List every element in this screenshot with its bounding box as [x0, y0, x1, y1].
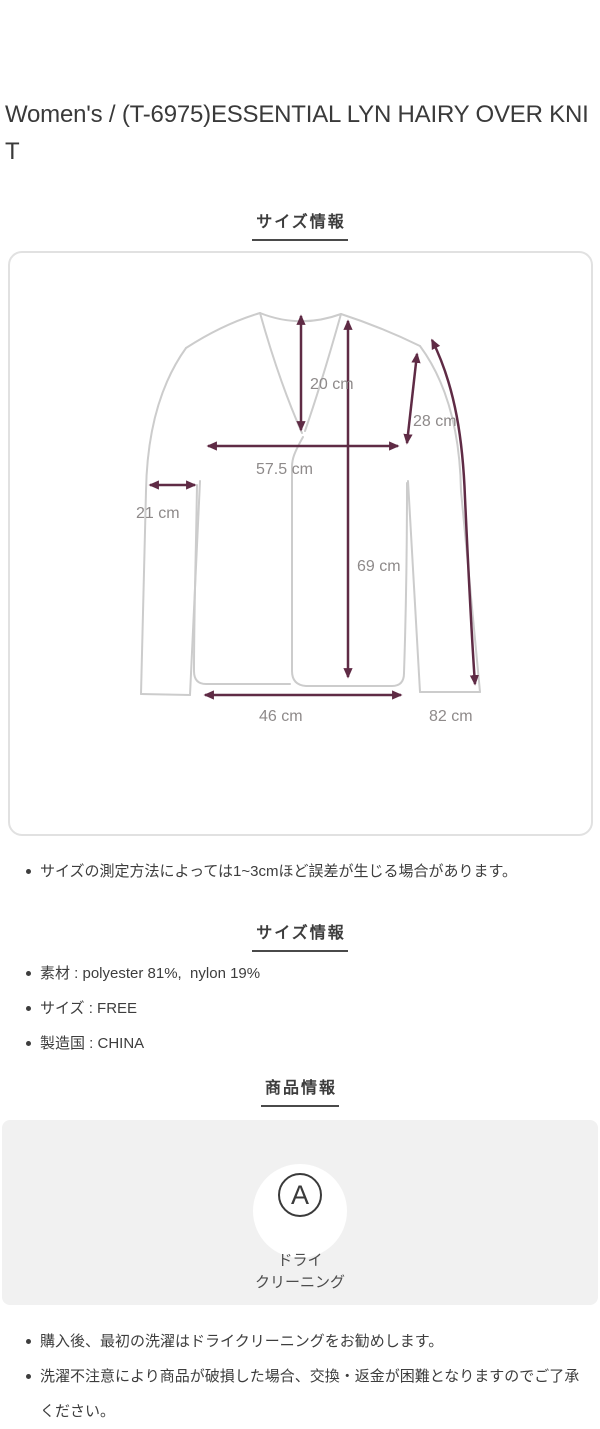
bullet-icon: [26, 1006, 31, 1011]
bullet-icon: [26, 971, 31, 976]
list-item: 購入後、最初の洗濯はドライクリーニングをお勧めします。: [0, 1324, 600, 1359]
list-item: 素材 : polyester 81%, nylon 19%: [0, 956, 600, 991]
measure-label-neck-drop: 20 cm: [310, 376, 354, 393]
bullet-icon: [26, 1041, 31, 1046]
measurement-labels: 20 cm 28 cm 57.5 cm 21 cm 69 cm 46 cm 82…: [136, 376, 473, 725]
bullet-icon: [26, 1374, 31, 1379]
size-diagram-box: 20 cm 28 cm 57.5 cm 21 cm 69 cm 46 cm 82…: [8, 251, 593, 836]
dry-cleaning-icon: A: [278, 1173, 322, 1217]
garment-size-diagram: 20 cm 28 cm 57.5 cm 21 cm 69 cm 46 cm 82…: [10, 253, 591, 834]
care-note-1: 購入後、最初の洗濯はドライクリーニングをお勧めします。: [40, 1333, 443, 1350]
care-note-2: 洗濯不注意により商品が破損した場合、交換・返金が困難となりますのでご了承ください…: [40, 1368, 579, 1420]
care-icon-letter: A: [291, 1182, 309, 1209]
measure-label-total-length: 69 cm: [357, 558, 401, 575]
list-item: 製造国 : CHINA: [0, 1026, 600, 1061]
bullet-icon: [26, 869, 31, 874]
measure-label-chest-width: 57.5 cm: [256, 461, 313, 478]
size-section-header: サイズ情報: [0, 214, 600, 241]
measure-label-armhole: 28 cm: [413, 413, 457, 430]
care-instructions-panel: A ドライ クリーニング: [2, 1120, 598, 1305]
care-label-line1: ドライ: [255, 1250, 345, 1272]
size-note-list: サイズの測定方法によっては1~3cmほど誤差が生じる場合があります。: [0, 854, 600, 889]
page-title: Women's / (T-6975)ESSENTIAL LYN HAIRY OV…: [0, 0, 600, 170]
list-item: サイズ : FREE: [0, 991, 600, 1026]
product-section-header: 商品情報: [0, 1080, 600, 1107]
spec-size: サイズ : FREE: [40, 1000, 137, 1017]
size-section-title: サイズ情報: [252, 215, 348, 241]
size-note-text: サイズの測定方法によっては1~3cmほど誤差が生じる場合があります。: [40, 863, 517, 880]
product-detail-page: Women's / (T-6975)ESSENTIAL LYN HAIRY OV…: [0, 0, 600, 1429]
list-item: サイズの測定方法によっては1~3cmほど誤差が生じる場合があります。: [0, 854, 600, 889]
product-section-title: 商品情報: [261, 1081, 339, 1107]
care-label: ドライ クリーニング: [255, 1250, 345, 1294]
measure-label-sleeve-width: 21 cm: [136, 505, 180, 522]
measure-label-sleeve-length: 82 cm: [429, 708, 473, 725]
spec-country: 製造国 : CHINA: [40, 1035, 144, 1052]
measure-label-hem-width: 46 cm: [259, 708, 303, 725]
care-icon-background: A: [253, 1164, 347, 1258]
product-notes-list: 購入後、最初の洗濯はドライクリーニングをお勧めします。 洗濯不注意により商品が破…: [0, 1324, 600, 1429]
spec-list: 素材 : polyester 81%, nylon 19% サイズ : FREE…: [0, 956, 600, 1061]
garment-outline: [141, 313, 480, 695]
spec-section-title: サイズ情報: [252, 926, 348, 952]
spec-material: 素材 : polyester 81%, nylon 19%: [40, 965, 260, 982]
bullet-icon: [26, 1339, 31, 1344]
spec-section-header: サイズ情報: [0, 925, 600, 952]
measure-arrow-sleeve-length: [432, 340, 475, 684]
care-label-line2: クリーニング: [255, 1272, 345, 1294]
list-item: 洗濯不注意により商品が破損した場合、交換・返金が困難となりますのでご了承ください…: [0, 1359, 600, 1429]
